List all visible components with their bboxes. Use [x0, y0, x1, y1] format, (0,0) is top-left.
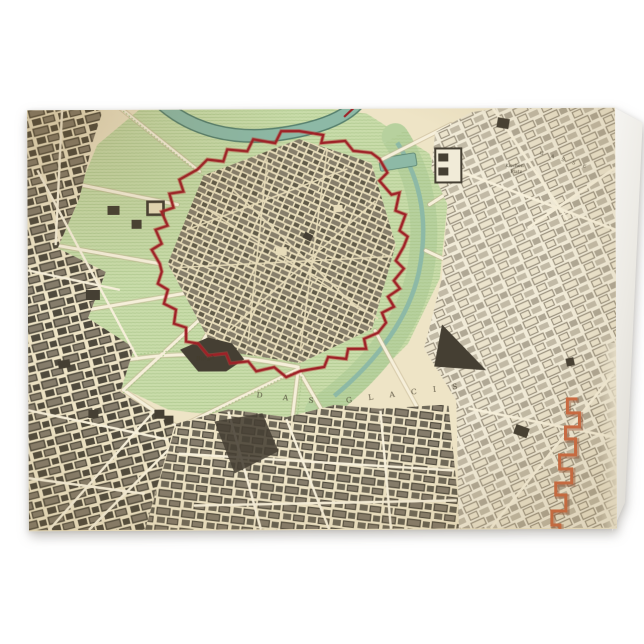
greeting-card: Burgh D A S G L A C I S Kirchen Platz G … — [0, 0, 644, 644]
paper-stain — [27, 108, 617, 532]
vintage-city-map: Burgh D A S G L A C I S Kirchen Platz G … — [27, 108, 617, 532]
greeting-card-front[interactable]: Burgh D A S G L A C I S Kirchen Platz G … — [27, 108, 617, 532]
product-photo-background: Burgh D A S G L A C I S Kirchen Platz G … — [0, 0, 644, 644]
